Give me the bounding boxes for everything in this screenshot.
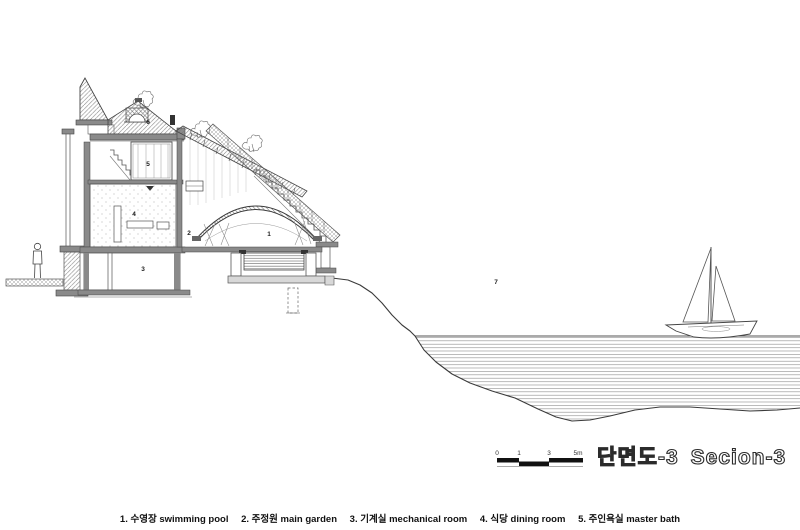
room-label-3: 3	[141, 266, 145, 273]
room-label-2: 2	[187, 230, 191, 237]
scale-tick-3: 3	[547, 450, 551, 457]
room-label-4: 4	[132, 211, 136, 218]
person-figure	[33, 243, 42, 278]
scale-tick-5m: 5m	[573, 450, 582, 457]
room-label-1: 1	[267, 231, 271, 238]
legend-item-3: 3. 기계실 mechanical room	[350, 514, 468, 525]
dining-room	[80, 184, 185, 253]
sea-water	[415, 336, 800, 421]
room-label-5: 5	[146, 161, 150, 168]
sailboat	[666, 247, 757, 338]
chimney	[170, 115, 175, 125]
jib-sail	[712, 266, 735, 321]
dashed-pier	[288, 288, 298, 313]
site-left	[6, 243, 63, 286]
legend-item-4: 4. 식당 dining room	[480, 514, 566, 525]
scale-tick-0: 0	[495, 450, 499, 457]
drawing-title-english: Secion-3	[691, 446, 787, 469]
scale-tick-1: 1	[517, 450, 521, 457]
legend-item-5: 5. 주인욕실 master bath	[578, 514, 680, 525]
drawing-title-korean: 단면도-3	[597, 446, 679, 469]
mechanical-room	[74, 253, 192, 297]
legend-item-1: 1. 수영장 swimming pool	[120, 514, 229, 525]
shed-roof-block	[176, 126, 307, 247]
mainsail	[683, 248, 711, 322]
railing-band	[206, 124, 340, 242]
ground-strip	[6, 279, 63, 286]
room-label-6: 6	[146, 119, 150, 126]
drawing-title: 단면도-3Secion-3	[597, 441, 797, 471]
interior-stair	[110, 150, 134, 180]
room-5-box	[131, 142, 172, 180]
legend: 1. 수영장 swimming pool 2. 주정원 main garden …	[0, 511, 800, 525]
left-outer-wall	[56, 129, 88, 296]
hull	[666, 321, 757, 338]
scale-bar: 0 1 3 5m	[495, 450, 583, 467]
terrace-pool	[182, 247, 334, 313]
legend-item-2: 2. 주정원 main garden	[241, 514, 337, 525]
pool-water	[244, 252, 304, 270]
building-section	[56, 78, 340, 313]
room-label-7: 7	[494, 279, 498, 286]
hip-roof	[108, 98, 176, 134]
architectural-section-sheet: 1 2 3 4 5 6 7 0 1 3 5m 단면도-3Secion-3 1. …	[0, 0, 800, 530]
